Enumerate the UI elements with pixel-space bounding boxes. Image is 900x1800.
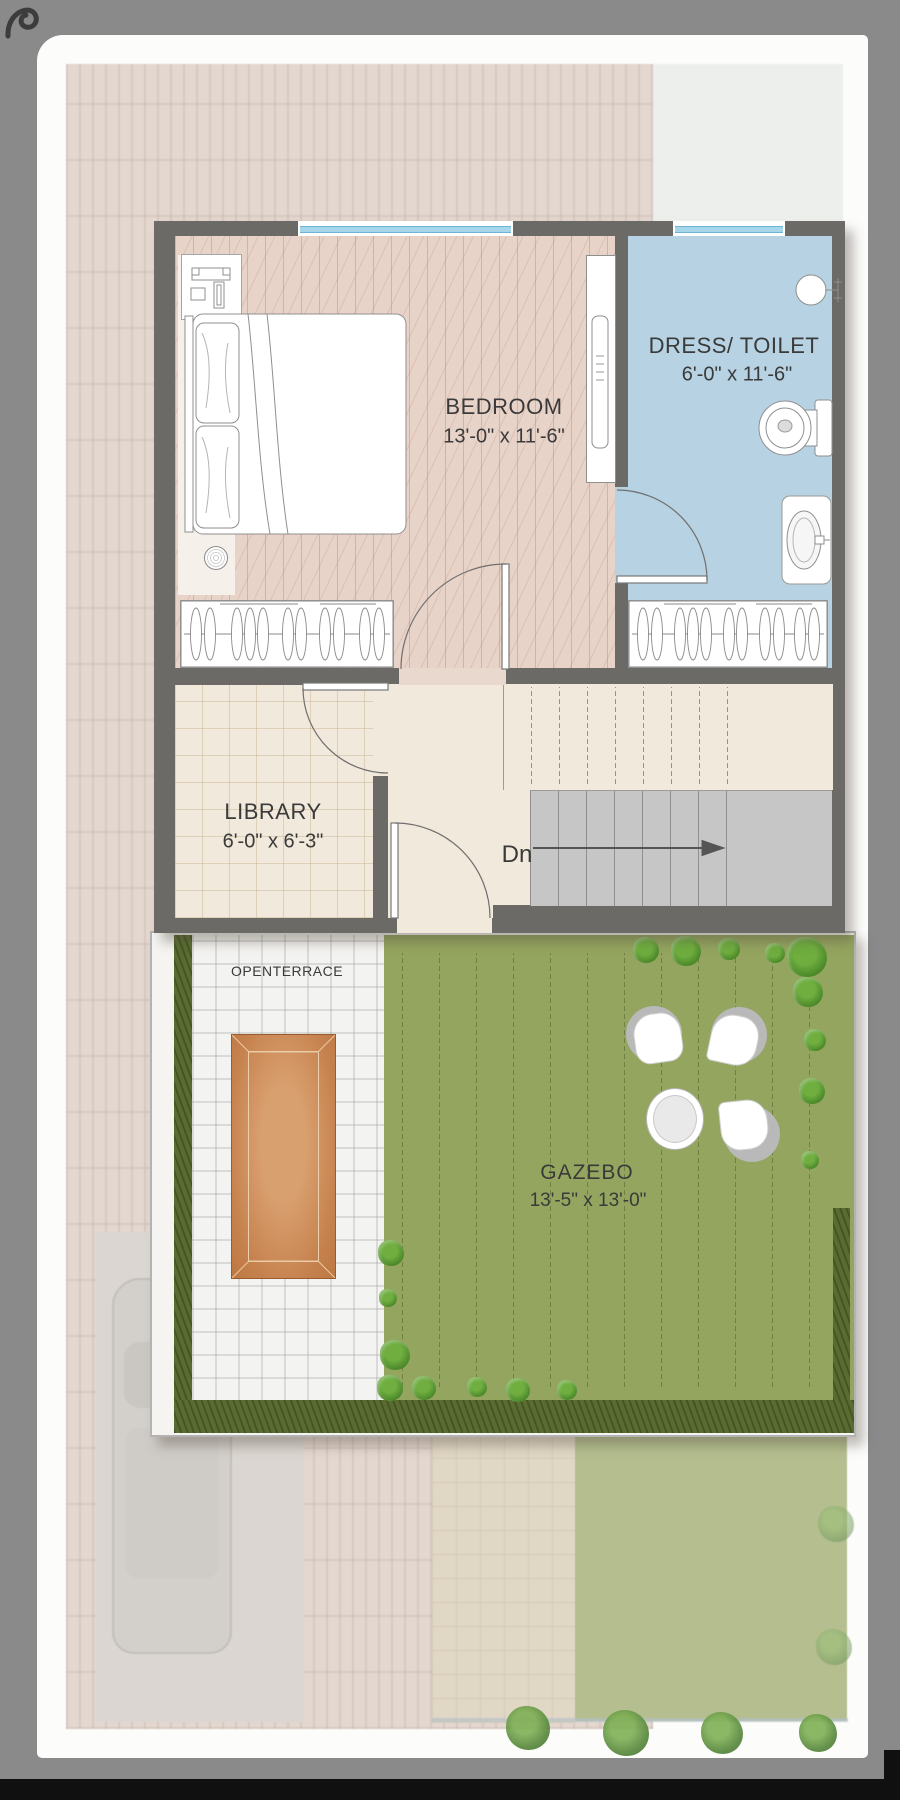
bottom-corner-notch	[884, 1750, 900, 1780]
patio-chair	[720, 1098, 778, 1160]
wood-deck-table	[231, 1034, 336, 1279]
tree	[818, 1506, 854, 1542]
garden-path	[432, 1433, 575, 1723]
tree	[799, 1714, 837, 1752]
hedge-bottom	[174, 1400, 854, 1433]
first-floor-plan: BEDROOM 13'-0" x 11'-6" DRESS/ TOILET 6'…	[154, 221, 845, 933]
bush	[793, 977, 823, 1007]
bush	[377, 1375, 403, 1401]
open-terrace-label: OPENTERRACE	[231, 963, 343, 979]
library-dims: 6'-0" x 6'-3"	[223, 831, 324, 854]
bedroom-label: BEDROOM	[445, 394, 562, 420]
bush	[718, 938, 740, 960]
bush	[787, 937, 827, 977]
car-roof	[126, 1428, 218, 1578]
bush	[804, 1029, 826, 1051]
bush	[633, 937, 659, 963]
tree	[506, 1706, 550, 1750]
bush	[412, 1376, 436, 1400]
patio-chair	[626, 1006, 684, 1068]
bush	[801, 1151, 819, 1169]
patio-table	[646, 1088, 704, 1150]
bush	[379, 1289, 397, 1307]
bush	[467, 1377, 487, 1397]
bedroom-dims: 13'-0" x 11'-6"	[443, 426, 565, 449]
bush	[506, 1378, 530, 1402]
bush	[765, 943, 785, 963]
tree	[701, 1712, 743, 1754]
dress-toilet-label: DRESS/ TOILET	[649, 333, 820, 359]
gazebo-dims: 13'-5" x 13'-0"	[530, 1190, 647, 1212]
bush	[557, 1380, 577, 1400]
hedge-right	[833, 1208, 850, 1402]
page-curl-icon	[3, 3, 41, 41]
tree	[816, 1629, 852, 1665]
bush	[671, 936, 701, 966]
doors-overlay	[154, 221, 845, 933]
terrace-gazebo-block: OPENTERRACE GAZEBO 13'-5" x 13'-0"	[150, 931, 856, 1437]
stairs-down-label: Dn	[502, 841, 533, 869]
bottom-band	[0, 1779, 900, 1800]
floor-plan-sheet: OPENTERRACE GAZEBO 13'-5" x 13'-0"	[0, 0, 900, 1800]
library-label: LIBRARY	[224, 799, 321, 825]
hedge-left	[174, 935, 192, 1402]
patio-chair	[708, 1006, 766, 1068]
bush	[380, 1340, 410, 1370]
ground-lawn	[575, 1433, 847, 1721]
down-arrow-icon	[533, 841, 724, 856]
bush	[378, 1240, 404, 1266]
gazebo-label: GAZEBO	[540, 1161, 634, 1185]
dress-toilet-dims: 6'-0" x 11'-6"	[682, 364, 792, 387]
bush	[799, 1078, 825, 1104]
roof-pad	[653, 64, 843, 221]
tree	[603, 1710, 649, 1756]
